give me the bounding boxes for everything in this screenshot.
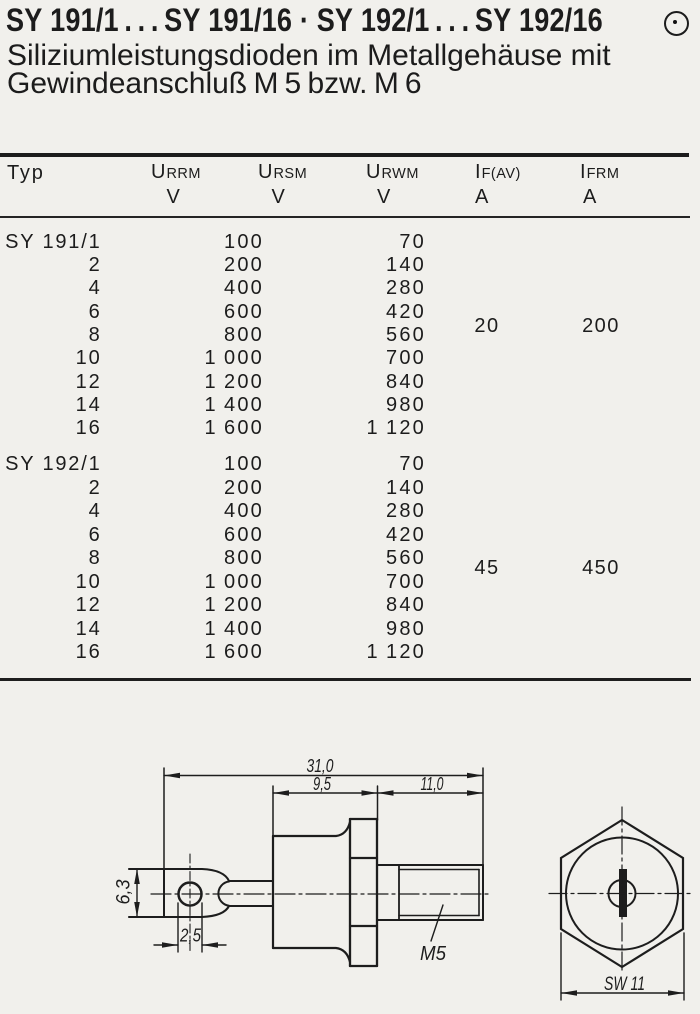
svg-text:SW 11: SW 11 (604, 974, 645, 995)
svg-text:9,5: 9,5 (313, 773, 331, 794)
svg-text:6,3: 6,3 (114, 879, 135, 904)
svg-text:2,5: 2,5 (179, 925, 201, 946)
svg-text:M5: M5 (420, 943, 447, 965)
svg-text:11,0: 11,0 (421, 773, 444, 794)
